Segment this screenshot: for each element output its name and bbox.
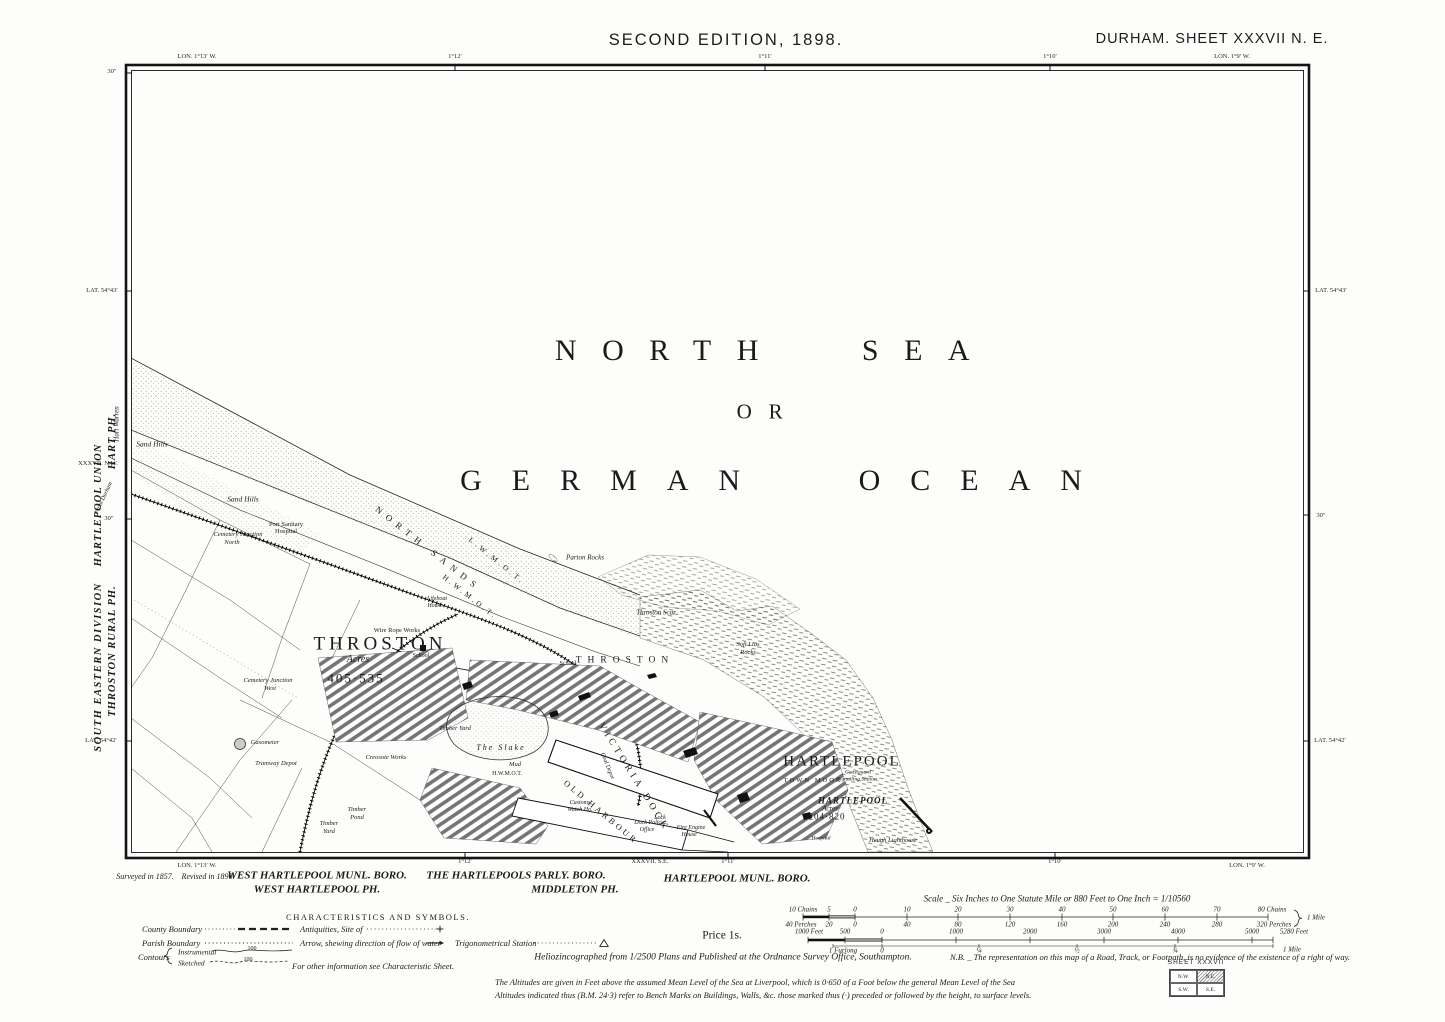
lon-bottom-tick1: 1°12′ xyxy=(458,859,472,866)
scale-perches-9: 280 xyxy=(1212,922,1223,929)
scale-feet-5: 3000 xyxy=(1097,929,1111,936)
sea-name-line1: NORTH SEA xyxy=(555,336,995,366)
scale-chains-5: 30 xyxy=(1007,907,1014,914)
legend-sketched: Sketched xyxy=(178,959,205,967)
scale-chains-2: 0 xyxy=(853,907,857,914)
cemetery-junction-west-1: Cemetery Junction xyxy=(244,678,293,685)
soft-lias-label-2: Rocks xyxy=(740,650,756,657)
lon-top-tick2: 1°11′ xyxy=(758,54,772,61)
scale-furlongs-0: 1 Furlong xyxy=(829,948,857,955)
dock-police-label-2: Office xyxy=(640,827,655,833)
scale-perches-6: 160 xyxy=(1057,922,1068,929)
heugh-lighthouse-label: Heugh Lighthouse xyxy=(869,838,917,845)
scale-furlongs-3: ½ xyxy=(1074,948,1079,955)
lifeboat-label-1: Lifeboat xyxy=(427,596,447,602)
lifeboat-label-2: House xyxy=(427,603,442,609)
scale-feet-3: 1000 xyxy=(949,929,963,936)
scale-chains-7: 50 xyxy=(1110,907,1117,914)
boro-west-hartlepool-2: WEST HARTLEPOOL PH. xyxy=(254,885,380,896)
hartlepool-title: HARTLEPOOL xyxy=(783,755,900,770)
scale-feet-6: 4000 xyxy=(1171,929,1185,936)
legend-instrumental: Instrumental xyxy=(178,948,216,956)
lon-bottom-tick2: 1°11′ xyxy=(721,859,735,866)
scale-chains-6: 40 xyxy=(1059,907,1066,914)
hospital-label: Hospital xyxy=(812,836,831,842)
soft-lias-label-1: Soft Lias xyxy=(737,642,760,649)
customs-label-1: Customs xyxy=(570,800,591,806)
port-sanitary-label-2: Hospital xyxy=(275,529,297,536)
mud-label: Mud xyxy=(509,762,521,769)
lon-bottom-tick3: 1°10′ xyxy=(1048,859,1062,866)
sand-beach xyxy=(131,360,640,638)
lat-right-42: LAT. 54°42′ xyxy=(1314,738,1346,745)
throston-title: THROSTON xyxy=(314,635,447,654)
lon-top-tick1: 1°12′ xyxy=(448,54,462,61)
scale-perches-3: 40 xyxy=(904,922,911,929)
creosote-works-label: Creosote Works xyxy=(366,755,407,762)
scale-perches-2: 0 xyxy=(853,922,857,929)
the-slake-label: The Slake xyxy=(476,744,525,752)
sec-top-left: 30″ xyxy=(107,69,116,76)
sheet-index-se: S.E. xyxy=(1197,983,1224,996)
legend-antiquities: Antiquities, Site of xyxy=(300,925,363,934)
sand-hills-label-1: Sand Hills xyxy=(136,440,167,448)
sea-name-line3: GERMAN OCEAN xyxy=(460,466,1112,496)
sheet-index-sw: S.W. xyxy=(1170,983,1197,996)
scale-perches-5: 120 xyxy=(1005,922,1016,929)
legend-arrow: Arrow, shewing direction of flow of wate… xyxy=(300,939,441,948)
scale-chains-0: 10 Chains xyxy=(789,907,818,914)
hwmot-slake-label: H.W.M.O.T. xyxy=(492,771,522,777)
scale-chains-4: 20 xyxy=(955,907,962,914)
legend-parish: Parish Boundary xyxy=(142,939,200,948)
scale-bars xyxy=(803,910,1302,948)
timber-yard-label: Timber Yard xyxy=(439,726,471,733)
cemetery-junction-north-2: North xyxy=(224,540,239,547)
throston-spread-label: THROSTON xyxy=(576,656,675,666)
boro-parly-2: MIDDLETON PH. xyxy=(531,885,618,896)
lat-left-43: LAT. 54°43′ xyxy=(86,288,118,295)
scale-feet-4: 2000 xyxy=(1023,929,1037,936)
scale-chains-9: 70 xyxy=(1214,907,1221,914)
timber-yard2-label-1: Timber xyxy=(320,821,338,828)
boro-parly-1: THE HARTLEPOOLS PARLY. BORO. xyxy=(426,871,605,882)
antiquities-cross-icon xyxy=(437,926,444,933)
rural-parish-label: THROSTON RURAL PH. xyxy=(108,585,119,716)
adjoining-sheet-se: XXXVII. S.E. xyxy=(631,859,668,866)
throston-acres-value: 405·535 xyxy=(327,672,384,685)
timber-pond-label-2: Pond xyxy=(350,815,364,822)
lat-right-43: LAT. 54°43′ xyxy=(1315,288,1347,295)
sand-hills-label-2: Sand Hills xyxy=(227,495,258,503)
school-label-2: School xyxy=(560,661,577,667)
scale-furlongs-4: ¾ xyxy=(1172,948,1177,955)
sheet-index-title: SHEET XXXVII xyxy=(1168,960,1224,967)
lon-top-tick3: 1°10′ xyxy=(1043,54,1057,61)
scale-furlongs-1: 0 xyxy=(880,948,884,955)
legend-trig: Trigonometrical Station xyxy=(455,939,536,948)
sheet-index-ne: N.E. xyxy=(1197,970,1224,983)
edition-title: SECOND EDITION, 1898. xyxy=(609,32,844,49)
tramway-depot-label: Tramway Depot xyxy=(255,761,297,768)
scale-feet-8: 5280 Feet xyxy=(1280,929,1308,936)
cemetery-junction-north-1: Cemetery Junction xyxy=(214,532,263,539)
legend-other-info: For other information see Characteristic… xyxy=(292,962,454,971)
gasometer-symbol xyxy=(235,739,246,750)
scale-mile-2: 1 Mile xyxy=(1283,947,1301,954)
sheet-index-diagram: N.W. N.E. S.W. S.E. xyxy=(1169,969,1225,997)
mile-brace-icon xyxy=(1294,910,1302,926)
scale-chains-1: 5 xyxy=(827,907,831,914)
lon-top-right: LON. 1°9′ W. xyxy=(1214,54,1250,61)
sec-right-mid: 30″ xyxy=(1316,513,1325,520)
scale-feet-1: 500 xyxy=(840,929,851,936)
surveyed-note: Surveyed in 1857. xyxy=(116,873,174,881)
legend-county: County Boundary xyxy=(142,925,202,934)
throston-scar-label: Throston Scar xyxy=(636,610,676,617)
town-moor-label: TOWN MOOR xyxy=(784,778,843,785)
altitude-note-2: Altitudes indicated thus (B.M. 24·3) ref… xyxy=(495,991,1031,1000)
throston-acres-label: Acres xyxy=(347,655,369,665)
hartlepool-acres-value: 204·820 xyxy=(809,813,846,822)
contour-value-1: 100 xyxy=(248,946,257,952)
coastguard-label-1: Coastguard xyxy=(845,770,871,776)
scale-mile-1: 1 Mile xyxy=(1307,915,1325,922)
gasometer-label: Gasometer xyxy=(251,740,280,747)
sheet-index-nw: N.W. xyxy=(1170,970,1197,983)
fire-engine-label-1: Fire Engine xyxy=(677,825,706,831)
scale-feet-2: 0 xyxy=(880,929,884,936)
cemetery-junction-west-2: West xyxy=(264,686,276,693)
division-label: SOUTH EASTERN DIVISION xyxy=(94,582,105,752)
nb-line: N.B. _ The representation on this map of… xyxy=(950,953,1350,962)
lock-label: Lock xyxy=(654,815,666,821)
lon-top-left: LON. 1°13′ W. xyxy=(177,54,216,61)
scale-feet-0: 1000 Feet xyxy=(795,929,823,936)
sec-left-mid: 30″ xyxy=(104,516,113,523)
sheet-title: DURHAM. SHEET XXXVII N. E. xyxy=(1096,32,1329,47)
fire-engine-label-2: House xyxy=(681,832,696,838)
scale-title: Scale _ Six Inches to One Statute Mile o… xyxy=(924,895,1191,904)
scale-feet-7: 5000 xyxy=(1245,929,1259,936)
altitude-note-1: The Altitudes are given in Feet above th… xyxy=(495,978,1015,987)
scale-furlongs-2: ¼ xyxy=(976,948,981,955)
imprint-line: Heliozincographed from 1/2500 Plans and … xyxy=(534,953,911,963)
legend-contours: Contours xyxy=(138,953,170,962)
boro-hartlepool: HARTLEPOOL MUNL. BORO. xyxy=(664,874,811,885)
hart-warren-label: Hart Warren xyxy=(114,406,121,441)
scale-perches-1: 20 xyxy=(826,922,833,929)
lon-bottom-right: LON. 1°9′ W. xyxy=(1229,863,1265,870)
boro-west-hartlepool-1: WEST HARTLEPOOL MUNL. BORO. xyxy=(227,871,407,882)
lon-bottom-left: LON. 1°13′ W. xyxy=(177,863,216,870)
scale-chains-10: 80 Chains xyxy=(1258,907,1287,914)
scale-chains-3: 10 xyxy=(904,907,911,914)
coastguard-label-2: Signalling Station xyxy=(837,777,877,783)
legend-title: CHARACTERISTICS AND SYMBOLS. xyxy=(286,913,470,922)
scale-perches-8: 240 xyxy=(1160,922,1171,929)
sea-name-line2: OR xyxy=(737,402,800,423)
timber-yard2-label-2: Yard xyxy=(323,829,335,836)
price-label: Price 1s. xyxy=(702,930,742,942)
parton-rocks-label: Parton Rocks xyxy=(566,555,604,562)
contour-value-2: 100 xyxy=(244,957,253,963)
timber-pond-label-1: Timber xyxy=(348,807,366,814)
scale-chains-8: 60 xyxy=(1162,907,1169,914)
customs-label-2: Watch Ho. xyxy=(567,807,592,813)
trig-station-icon xyxy=(600,940,608,947)
